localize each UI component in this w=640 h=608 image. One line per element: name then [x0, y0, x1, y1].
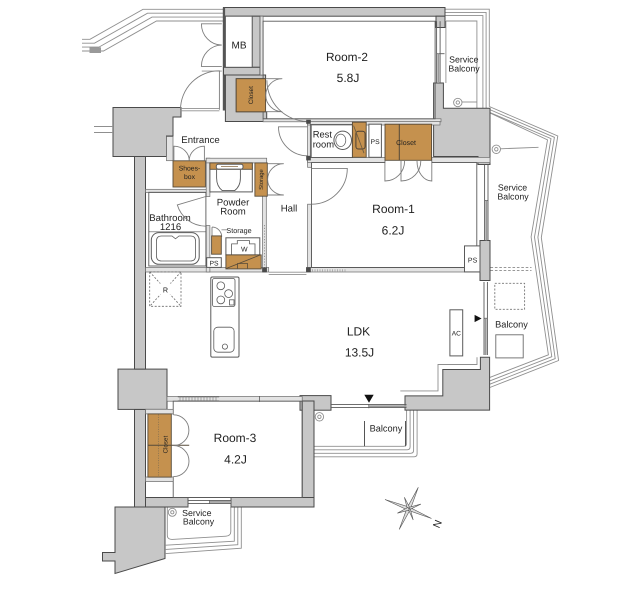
svg-text:MB: MB [232, 40, 247, 51]
svg-text:Room: Room [220, 206, 246, 217]
svg-text:Storage: Storage [226, 226, 251, 235]
svg-text:Entrance: Entrance [181, 135, 219, 146]
svg-text:5.8J: 5.8J [337, 71, 360, 85]
svg-text:Storage: Storage [258, 168, 265, 189]
svg-text:13.5J: 13.5J [345, 346, 374, 360]
svg-text:1216: 1216 [160, 222, 181, 233]
svg-text:PS: PS [468, 257, 478, 264]
svg-text:6.2J: 6.2J [382, 224, 405, 238]
svg-text:AC: AC [452, 331, 461, 338]
svg-text:Shoes-: Shoes- [179, 165, 201, 172]
svg-text:box: box [184, 174, 196, 181]
svg-text:Closet: Closet [248, 86, 255, 104]
svg-text:PS: PS [209, 261, 219, 268]
svg-text:Balcony: Balcony [370, 423, 403, 433]
svg-text:Closet: Closet [162, 436, 169, 454]
svg-text:Closet: Closet [396, 139, 416, 147]
svg-text:Balcony: Balcony [497, 191, 529, 201]
svg-text:Balcony: Balcony [448, 64, 480, 74]
svg-text:LDK: LDK [347, 325, 370, 339]
svg-text:Room-2: Room-2 [326, 50, 368, 64]
svg-text:Balcony: Balcony [183, 517, 215, 527]
svg-text:room: room [313, 139, 335, 150]
svg-text:PS: PS [371, 139, 381, 146]
svg-text:W: W [241, 247, 248, 254]
svg-text:Balcony: Balcony [495, 319, 528, 329]
svg-text:Room-3: Room-3 [214, 431, 257, 445]
svg-text:Room-1: Room-1 [372, 202, 415, 216]
svg-text:R: R [163, 285, 168, 294]
svg-text:Rest: Rest [313, 128, 333, 139]
svg-text:Hall: Hall [281, 204, 298, 215]
svg-text:4.2J: 4.2J [224, 453, 247, 467]
